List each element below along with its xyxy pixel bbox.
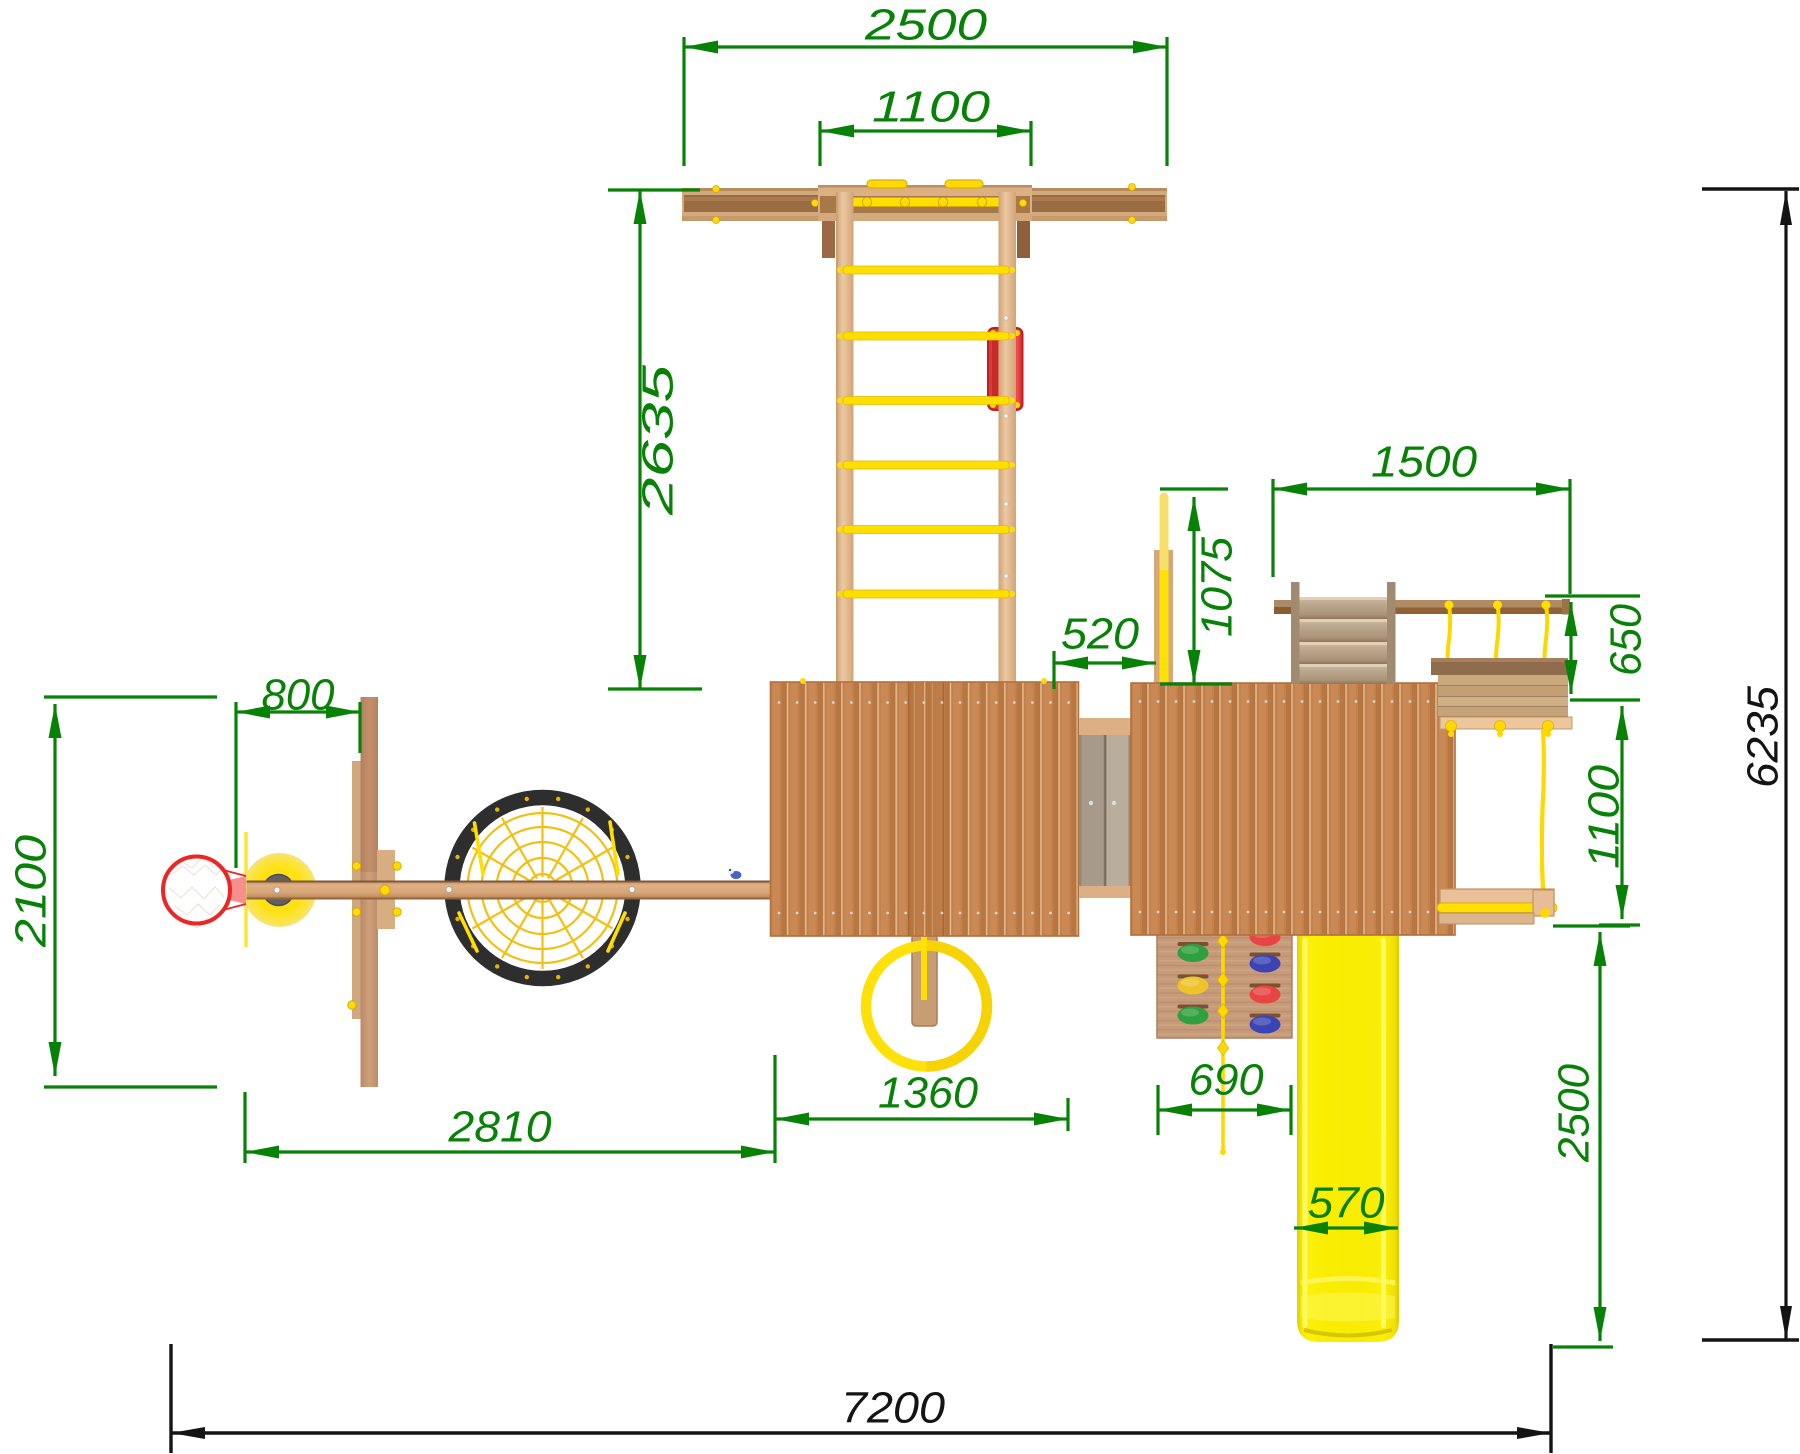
svg-text:7200: 7200 [841, 1384, 946, 1433]
svg-text:690: 690 [1189, 1056, 1265, 1105]
svg-text:6235: 6235 [1739, 685, 1788, 788]
svg-text:2635: 2635 [634, 364, 683, 516]
svg-text:2810: 2810 [447, 1103, 552, 1152]
svg-text:1100: 1100 [872, 83, 991, 132]
svg-text:2100: 2100 [7, 834, 56, 948]
svg-text:2500: 2500 [1550, 1063, 1599, 1163]
svg-text:1100: 1100 [1580, 764, 1629, 869]
svg-text:1360: 1360 [878, 1069, 979, 1118]
svg-text:1500: 1500 [1371, 438, 1478, 487]
svg-text:2500: 2500 [864, 1, 988, 50]
svg-text:800: 800 [262, 671, 336, 720]
svg-text:650: 650 [1602, 603, 1651, 676]
svg-text:520: 520 [1061, 610, 1140, 659]
svg-text:570: 570 [1308, 1179, 1386, 1228]
svg-text:1075: 1075 [1193, 536, 1242, 637]
